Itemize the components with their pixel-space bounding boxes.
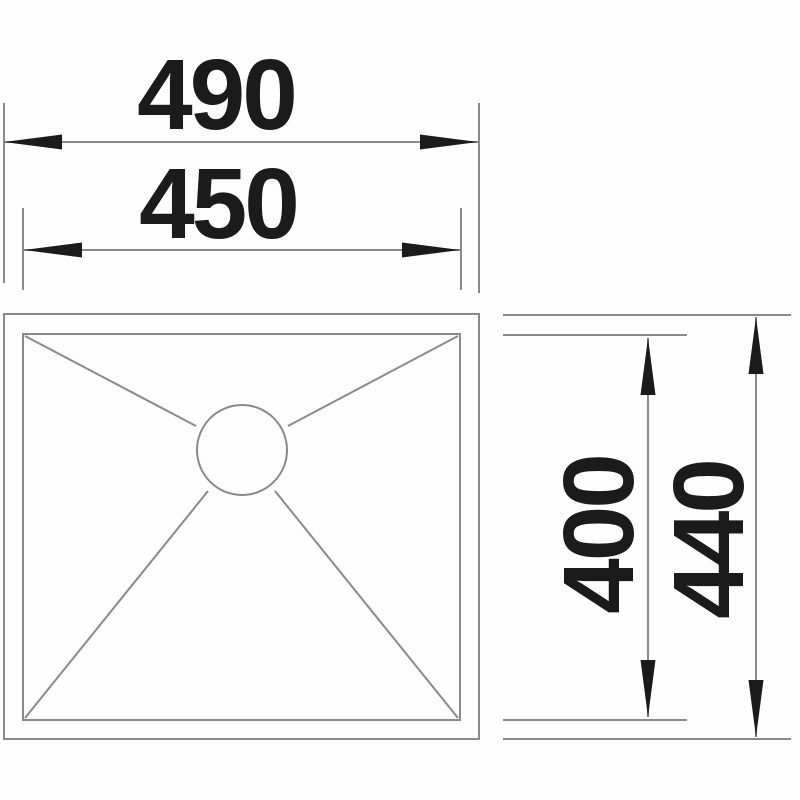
sink-outer-rect	[4, 314, 479, 739]
dim-label-inner-width: 450	[139, 148, 297, 260]
sink-inner-rect	[23, 334, 460, 720]
bowl-diagonal-top-right	[288, 336, 458, 426]
drawing-canvas: 490 450 400 440	[0, 0, 800, 800]
drain-circle	[197, 405, 287, 495]
arrow-440-up-icon	[749, 317, 764, 374]
sink-dimension-drawing: 490 450 400 440	[0, 0, 800, 800]
dim-label-outer-width: 490	[137, 39, 295, 151]
arrow-490-left-icon	[4, 135, 62, 150]
arrow-450-left-icon	[24, 243, 82, 258]
arrow-400-up-icon	[641, 338, 656, 395]
arrowhead-layer	[4, 135, 764, 738]
bowl-diagonal-bottom-left	[25, 491, 208, 718]
dim-label-outer-depth: 440	[653, 461, 765, 619]
bowl-diagonal-top-left	[25, 336, 196, 426]
dimension-label-layer: 490 450 400 440	[137, 39, 765, 619]
arrow-400-down-icon	[641, 660, 656, 717]
arrow-440-down-icon	[749, 680, 764, 737]
arrow-450-right-icon	[402, 243, 460, 258]
dim-label-inner-depth: 400	[543, 456, 655, 614]
arrow-490-right-icon	[420, 135, 478, 150]
bowl-diagonal-bottom-right	[275, 491, 458, 718]
thin-line-layer	[4, 103, 791, 739]
